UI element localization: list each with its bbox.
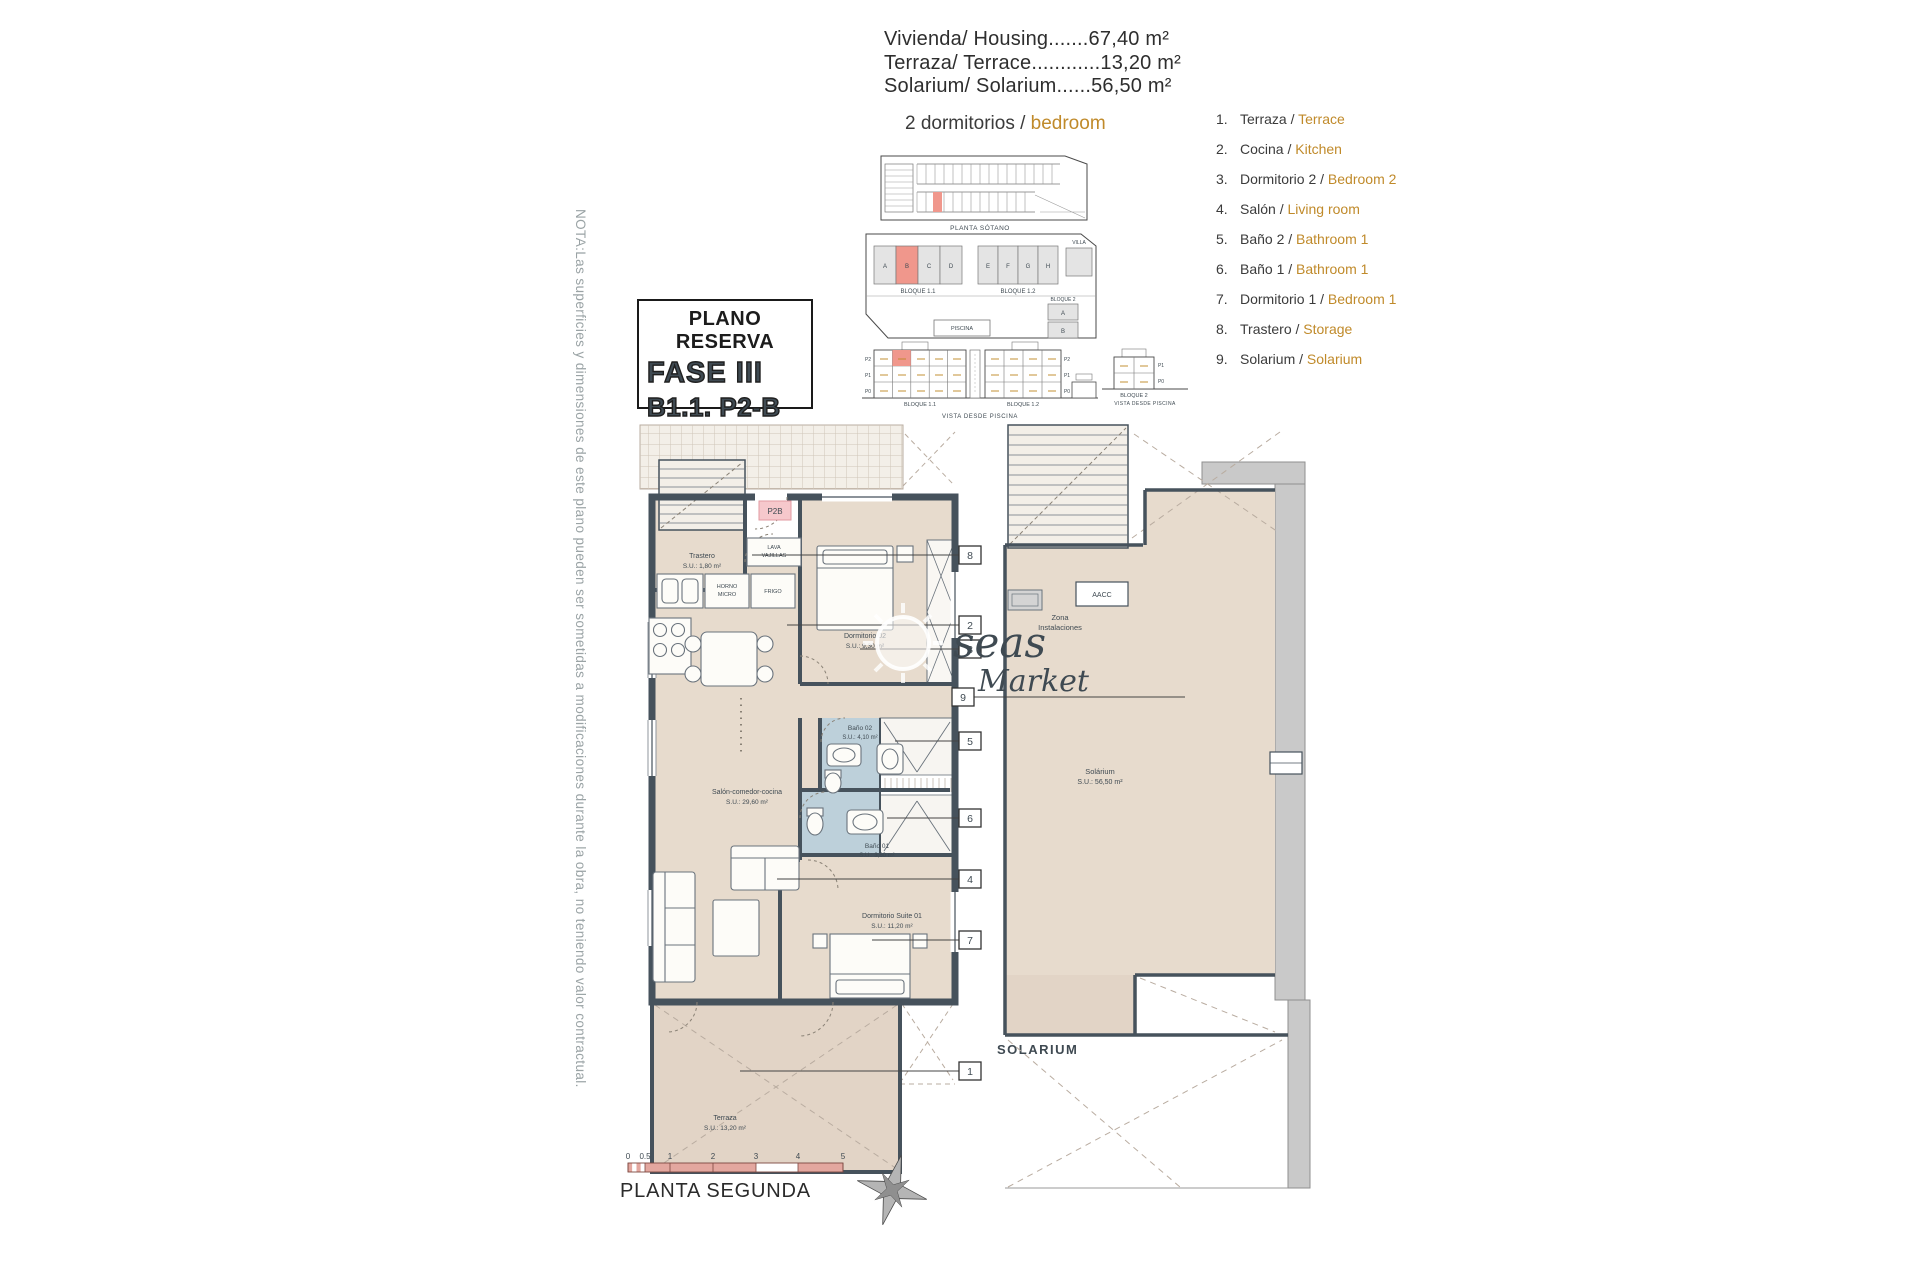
svg-text:F: F — [1006, 264, 1010, 270]
elevation-diagram: P2 P1 P0 P2 P1 P0 BLOQUE 1.1 BLOQUE 1.2 … — [860, 340, 1100, 420]
reserve-outline-text: FASE III B1.1. P2-B — [639, 354, 809, 426]
legend-item-salon: 4.Salón / Living room — [1216, 202, 1396, 216]
bathroom2-toilet — [825, 773, 841, 793]
svg-text:D: D — [949, 264, 954, 270]
elevation-bloque11-label: BLOQUE 1.1 — [904, 402, 936, 408]
svg-text:P0: P0 — [1158, 379, 1164, 385]
svg-text:2: 2 — [711, 1152, 716, 1161]
svg-text:E: E — [986, 264, 990, 270]
svg-text:A: A — [1061, 311, 1065, 317]
label-dorm2: Dormitorio 02 — [844, 633, 886, 640]
svg-text:P1: P1 — [1158, 363, 1164, 369]
svg-text:P0: P0 — [865, 389, 871, 395]
svg-text:S.U.: 3,60 m²: S.U.: 3,60 m² — [859, 853, 894, 859]
svg-text:S.U.: 4,10 m²: S.U.: 4,10 m² — [842, 735, 877, 741]
svg-text:MICRO: MICRO — [718, 592, 737, 598]
svg-text:A: A — [883, 264, 887, 270]
svg-text:3: 3 — [754, 1152, 759, 1161]
bathroom1-toilet — [807, 813, 823, 835]
legend-item-trastero: 8.Trastero / Storage — [1216, 322, 1396, 336]
area-line-terrace: Terraza/ Terrace............13,20 m² — [884, 52, 1181, 76]
basement-diagram: PLANTA SÓTANO — [875, 150, 1095, 234]
unit-marker-text: P2B — [767, 507, 782, 516]
svg-text:S.U.: 1,80 m²: S.U.: 1,80 m² — [683, 563, 722, 570]
compass-rose-icon — [852, 1146, 928, 1230]
svg-text:BLOQUE 2: BLOQUE 2 — [1050, 297, 1075, 303]
svg-text:G: G — [1026, 264, 1031, 270]
svg-text:S.U.: 56,50 m²: S.U.: 56,50 m² — [1077, 779, 1123, 786]
elevation-bloque12-label: BLOQUE 1.2 — [1007, 402, 1039, 408]
reserve-fase: FASE III — [647, 357, 763, 389]
legend-item-dormitorio1: 7.Dormitorio 1 / Bedroom 1 — [1216, 292, 1396, 306]
legend-item-bano1: 6.Baño 1 / Bathroom 1 — [1216, 262, 1396, 276]
ac-unit — [1008, 590, 1042, 610]
room-legend: 1.Terraza / Terrace 2.Cocina / Kitchen 3… — [1216, 112, 1396, 366]
aacc-label: AACC — [1092, 592, 1111, 599]
svg-text:VAJILLAS: VAJILLAS — [762, 553, 787, 559]
callout-9: 9 — [960, 692, 966, 704]
svg-text:1: 1 — [668, 1152, 673, 1161]
label-trastero: Trastero — [689, 553, 715, 560]
legend-item-cocina: 2.Cocina / Kitchen — [1216, 142, 1396, 156]
unit-type-prefix: 2 dormitorios / — [905, 113, 1031, 134]
elevation2-diagram: P1 P0 BLOQUE 2 VISTA DESDE PISCINA — [1100, 343, 1190, 407]
plano-reserva-box: PLANO RESERVA FASE III B1.1. P2-B — [637, 299, 813, 409]
legend-item-solarium: 9.Solarium / Solarium — [1216, 352, 1396, 366]
coffee-table — [713, 900, 759, 956]
disclaimer-note-text: NOTA:Las superficies y dimensiones de es… — [573, 209, 588, 1088]
floorplan-sheet: Vivienda/ Housing.......67,40 m² Terraza… — [0, 0, 1920, 1280]
svg-text:0: 0 — [626, 1152, 631, 1161]
svg-text:P2: P2 — [865, 357, 871, 363]
legend-item-bano2: 5.Baño 2 / Bathroom 1 — [1216, 232, 1396, 246]
label-solarium-room: Solárium — [1085, 767, 1115, 776]
area-summary: Vivienda/ Housing.......67,40 m² Terraza… — [884, 28, 1181, 99]
unit-type-highlight: bedroom — [1031, 113, 1106, 134]
svg-text:0.5: 0.5 — [639, 1152, 651, 1161]
svg-text:FRIGO: FRIGO — [764, 589, 782, 595]
svg-text:S.U.: 29,60 m²: S.U.: 29,60 m² — [726, 799, 769, 806]
oven-micro-unit — [705, 574, 749, 608]
area-line-solarium: Solarium/ Solarium......56,50 m² — [884, 75, 1181, 99]
basement-highlight-stall — [933, 192, 942, 212]
solarium-caption: SOLARIUM — [997, 1042, 1078, 1057]
site-plan-diagram: A B C D BLOQUE 1.1 E F G H BLOQUE 1.2 VI… — [856, 226, 1102, 346]
svg-text:P1: P1 — [865, 373, 871, 379]
solarium-plan: AACC Zona Instalaciones Solárium S.U.: 5… — [950, 422, 1322, 1195]
svg-text:C: C — [927, 264, 932, 270]
svg-text:P2: P2 — [1064, 357, 1070, 363]
svg-text:PISCINA: PISCINA — [951, 326, 973, 332]
label-salon: Salón-comedor-cocina — [712, 789, 782, 796]
label-bano2: Baño 02 — [848, 725, 873, 732]
svg-text:S.U.: 13,20 m²: S.U.: 13,20 m² — [704, 1125, 747, 1132]
label-terraza: Terraza — [713, 1115, 736, 1122]
svg-text:P0: P0 — [1064, 389, 1070, 395]
elevation2-caption: VISTA DESDE PISCINA — [1114, 401, 1176, 407]
label-bano1: Baño 01 — [865, 843, 890, 850]
area-line-housing: Vivienda/ Housing.......67,40 m² — [884, 28, 1181, 52]
zona-label-1: Zona — [1051, 613, 1069, 622]
zona-label-2: Instalaciones — [1038, 623, 1082, 632]
svg-text:LAVA: LAVA — [767, 545, 781, 551]
main-floor-plan: P2B HORNO MICRO FRIGO LAVA VAJILLAS Tras… — [637, 422, 985, 1180]
dishwasher-unit — [747, 538, 801, 566]
site-bloque11-label: BLOQUE 1.1 — [900, 289, 936, 295]
svg-text:HORNO: HORNO — [717, 584, 738, 590]
site-bloque12-label: BLOQUE 1.2 — [1000, 289, 1036, 295]
svg-text:P1: P1 — [1064, 373, 1070, 379]
plan-name: PLANTA SEGUNDA — [620, 1180, 811, 1203]
label-suite: Dormitorio Suite 01 — [862, 913, 922, 920]
legend-item-terraza: 1.Terraza / Terrace — [1216, 112, 1396, 126]
solarium-stairs — [1008, 425, 1128, 548]
svg-text:VILLA: VILLA — [1072, 240, 1086, 246]
reserve-title: PLANO RESERVA — [639, 308, 811, 354]
svg-text:B: B — [1061, 329, 1065, 335]
svg-text:B: B — [905, 264, 909, 270]
legend-item-dormitorio2: 3.Dormitorio 2 / Bedroom 2 — [1216, 172, 1396, 186]
elevation2-bloque2-label: BLOQUE 2 — [1120, 393, 1148, 399]
reserve-unit: B1.1. P2-B — [647, 392, 781, 422]
svg-text:H: H — [1046, 264, 1050, 270]
site-piscina: PISCINA — [934, 320, 990, 336]
svg-text:S.U.: 11,20 m²: S.U.: 11,20 m² — [871, 923, 913, 930]
svg-text:4: 4 — [796, 1152, 801, 1161]
elevation-highlight-unit — [892, 350, 910, 366]
svg-text:5: 5 — [841, 1152, 846, 1161]
sofa-2 — [653, 872, 695, 982]
unit-type-label: 2 dormitorios / bedroom — [905, 113, 1106, 135]
dining-table — [701, 632, 757, 686]
elevation-caption: VISTA DESDE PISCINA — [942, 414, 1018, 420]
